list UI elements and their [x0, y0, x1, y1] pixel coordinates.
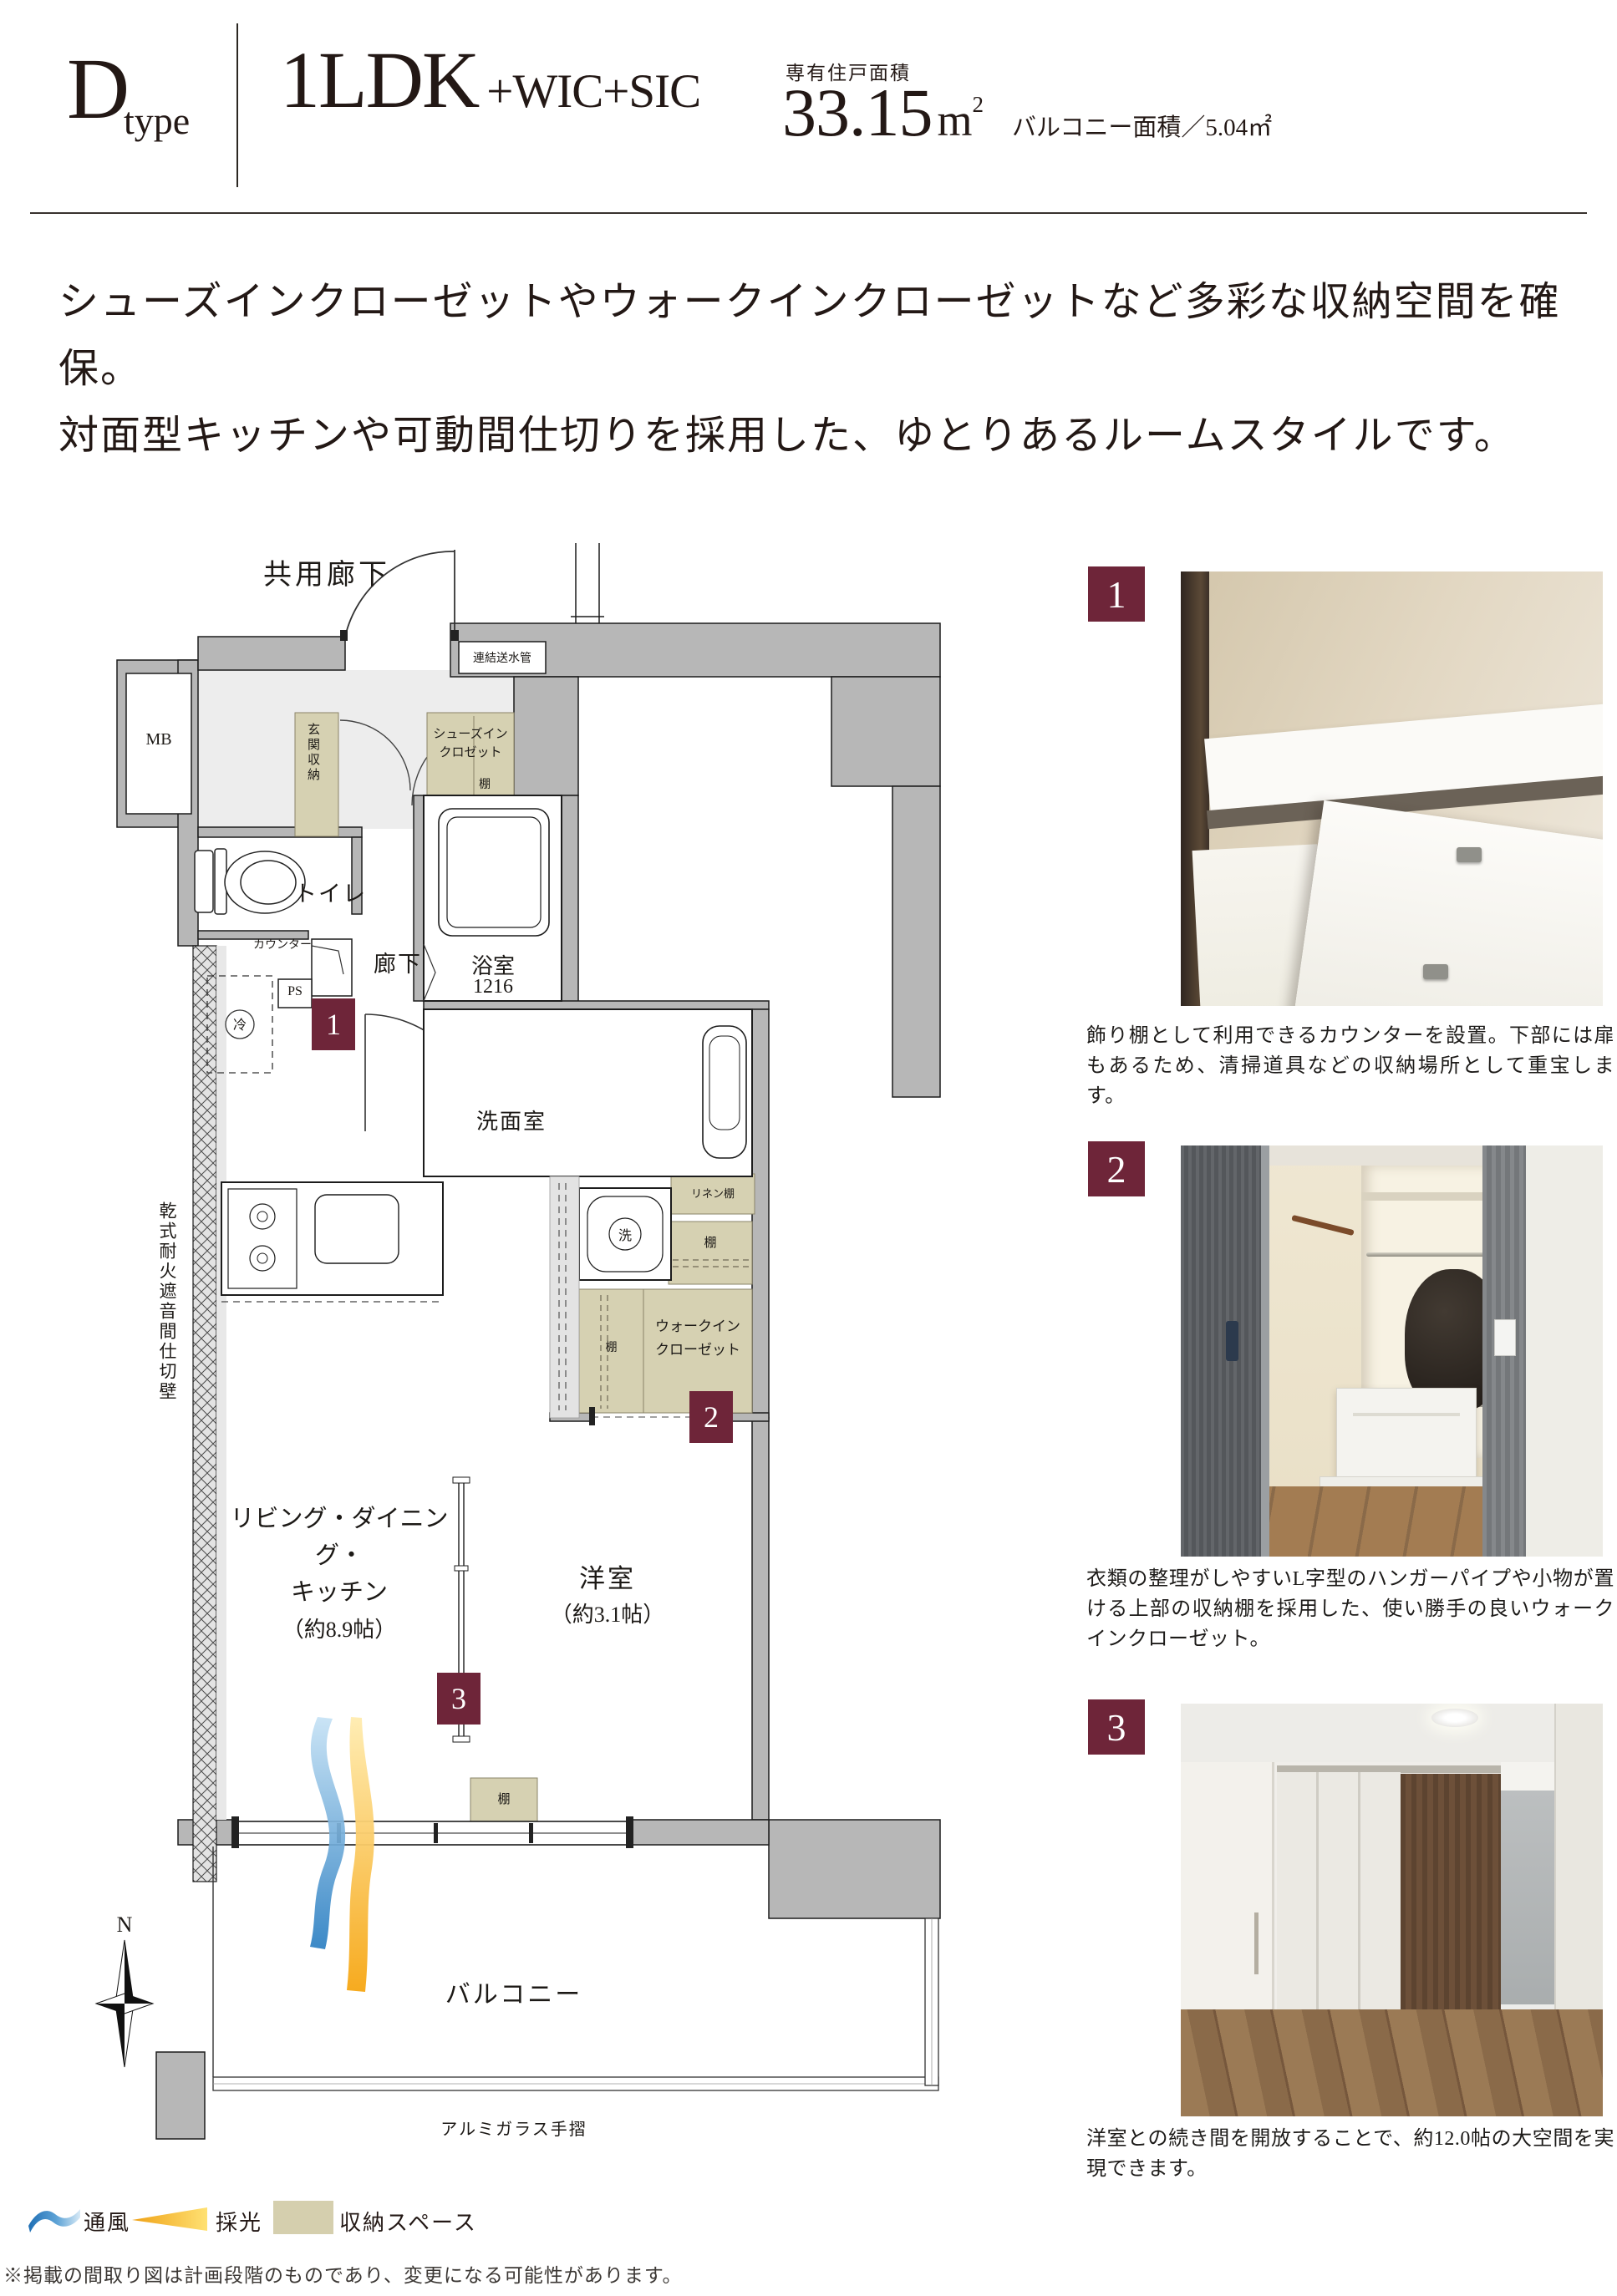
photo-3-room: [1181, 1704, 1603, 2116]
label-western-room: 洋室: [514, 1557, 701, 1595]
description-line-2: 対面型キッチンや可動間仕切りを採用した、ゆとりあるルームスタイルです。: [58, 403, 1617, 470]
legend-ventilation-label: 通風: [84, 2206, 130, 2237]
label-entrance-storage: 玄関収納: [304, 723, 322, 783]
ventilation-icon: [28, 2201, 80, 2234]
photo-1-hinge-top: [1457, 847, 1482, 862]
floor-plan: 冷 洗: [96, 543, 940, 2206]
brochure-page: D type 1LDK +WIC+SIC 専有住戸面積 33.15 m2 バルコ…: [0, 0, 1617, 2296]
description-line-1: シューズインクローゼットやウォークインクローゼットなど多彩な収納空間を確保。: [58, 269, 1617, 403]
legend-storage-label: 収納スペース: [339, 2206, 477, 2237]
photo-3-door-handle: [1254, 1912, 1259, 1974]
balcony-window: [231, 1816, 633, 1848]
photo-2-wood-hanger: [1291, 1215, 1354, 1236]
area-value: 33.15: [782, 74, 933, 152]
label-western-room-size: （約3.1帖）: [514, 1598, 701, 1628]
label-toilet: トイレ: [294, 876, 367, 908]
party-wall-hatch: [193, 946, 216, 1882]
photo-2-light-switch: [1494, 1319, 1516, 1356]
label-pipe-space: PS: [278, 984, 312, 999]
label-common-corridor: 共用廊下: [263, 551, 390, 592]
photo-3-wood-floor: [1181, 2009, 1603, 2116]
photo-2-right-wall: [1526, 1145, 1603, 1557]
kitchen-counter: [221, 1182, 443, 1302]
photo-2-door-frame: [1261, 1145, 1269, 1557]
photo-2-storage-box: [1336, 1388, 1477, 1486]
photo-3-badge: 3: [1088, 1699, 1145, 1755]
refrigerator-label: 冷: [233, 1018, 247, 1033]
plan-type-main: 1LDK: [280, 33, 478, 126]
photo-3-gray-wall: [1501, 1791, 1554, 2006]
label-wic-top-shelf: 棚: [669, 1233, 752, 1251]
label-counter: カウンター: [253, 936, 312, 952]
photo-1-caption: 飾り棚として利用できるカウンターを設置。下部には扉もあるため、清掃道具などの収納…: [1086, 1021, 1614, 1111]
balcony-area-note: バルコニー面積／5.04㎡: [1012, 108, 1272, 143]
label-partition-wall: 乾式耐火遮音間仕切壁: [155, 1201, 180, 1477]
label-hallway: 廊下: [374, 946, 422, 978]
photo-2-caption: 衣類の整理がしやすいL字型のハンガーパイプや小物が置ける上部の収納棚を採用した、…: [1086, 1564, 1614, 1654]
counter-box: [312, 939, 352, 996]
label-walk-in-closet: ウォークインクローゼット: [638, 1315, 758, 1362]
label-shoes-shelf: 棚: [479, 775, 491, 792]
header-divider: [236, 23, 238, 187]
photo-3-soffit: [1501, 1762, 1554, 1792]
footnote: ※掲載の間取り図は計画段階のものであり、変更になる可能性があります。: [3, 2259, 683, 2288]
label-bottom-shelf: 棚: [470, 1790, 537, 1807]
plan-badge-1: 1: [312, 998, 355, 1050]
header-rule: [30, 212, 1587, 214]
photo-1-badge: 1: [1088, 566, 1145, 622]
plan-badge-2: 2: [689, 1391, 733, 1443]
daylight-flow: [347, 1717, 374, 1992]
label-meter-box: MB: [126, 730, 191, 749]
compass-north-label: N: [117, 1912, 133, 1937]
label-standpipe: 連結送水管: [459, 649, 546, 666]
photo-3-partition-panels: [1277, 1772, 1401, 2014]
unit-type-letter: D: [67, 42, 130, 137]
area-unit: m2: [938, 92, 984, 146]
photo-3-panel-seam-2: [1358, 1772, 1360, 2014]
legend-daylight-label: 採光: [216, 2206, 262, 2237]
label-wic-left-shelf: 棚: [579, 1338, 643, 1355]
photo-1-hinge-bottom: [1423, 964, 1448, 979]
plan-type: 1LDK +WIC+SIC: [280, 33, 700, 126]
photo-3-white-door: [1181, 1762, 1274, 2018]
floor-plan-drawing: 冷 洗: [96, 543, 940, 2206]
photo-3-panel-seam: [1316, 1772, 1319, 2014]
photo-2-walk-in-closet: [1181, 1145, 1603, 1557]
toilet-fixture: [195, 849, 305, 914]
label-balcony: バルコニー: [389, 1973, 639, 2010]
description-text: シューズインクローゼットやウォークインクローゼットなど多彩な収納空間を確保。 対…: [58, 269, 1617, 470]
photo-2-sliding-door: [1181, 1145, 1261, 1557]
area-row: 33.15 m2 バルコニー面積／5.04㎡: [782, 74, 1272, 152]
photo-3-ceiling: [1181, 1704, 1603, 1762]
compass: N: [96, 1912, 153, 2067]
photo-2-door-handle: [1226, 1321, 1238, 1361]
label-ldk: リビング・ダイニング・キッチン（約8.9帖）: [209, 1501, 470, 1648]
plan-type-extra: +WIC+SIC: [486, 64, 700, 119]
washer-label: 洗: [618, 1228, 632, 1243]
label-shoes-closet: シューズインクロゼット: [427, 725, 514, 762]
storage-swatch: [273, 2201, 333, 2234]
photo-3-caption: 洋室との続き間を開放することで、約12.0帖の大空間を実現できます。: [1086, 2124, 1614, 2184]
label-washroom: 洗面室: [476, 1105, 547, 1135]
photo-3-downlight: [1431, 1709, 1478, 1727]
plan-badge-3: 3: [437, 1673, 481, 1725]
photo-2-box-lid: [1353, 1413, 1460, 1416]
label-handrail: アルミガラス手摺: [372, 2116, 656, 2140]
label-bathroom-size: 1216: [435, 976, 552, 998]
unit-type-word: type: [124, 99, 190, 143]
photo-3-brown-door: [1401, 1774, 1501, 2011]
photo-1-shoe-closet: [1181, 571, 1603, 1006]
label-linen-shelf: リネン棚: [671, 1185, 755, 1201]
photo-2-badge: 2: [1088, 1141, 1145, 1196]
daylight-icon: [132, 2207, 207, 2231]
